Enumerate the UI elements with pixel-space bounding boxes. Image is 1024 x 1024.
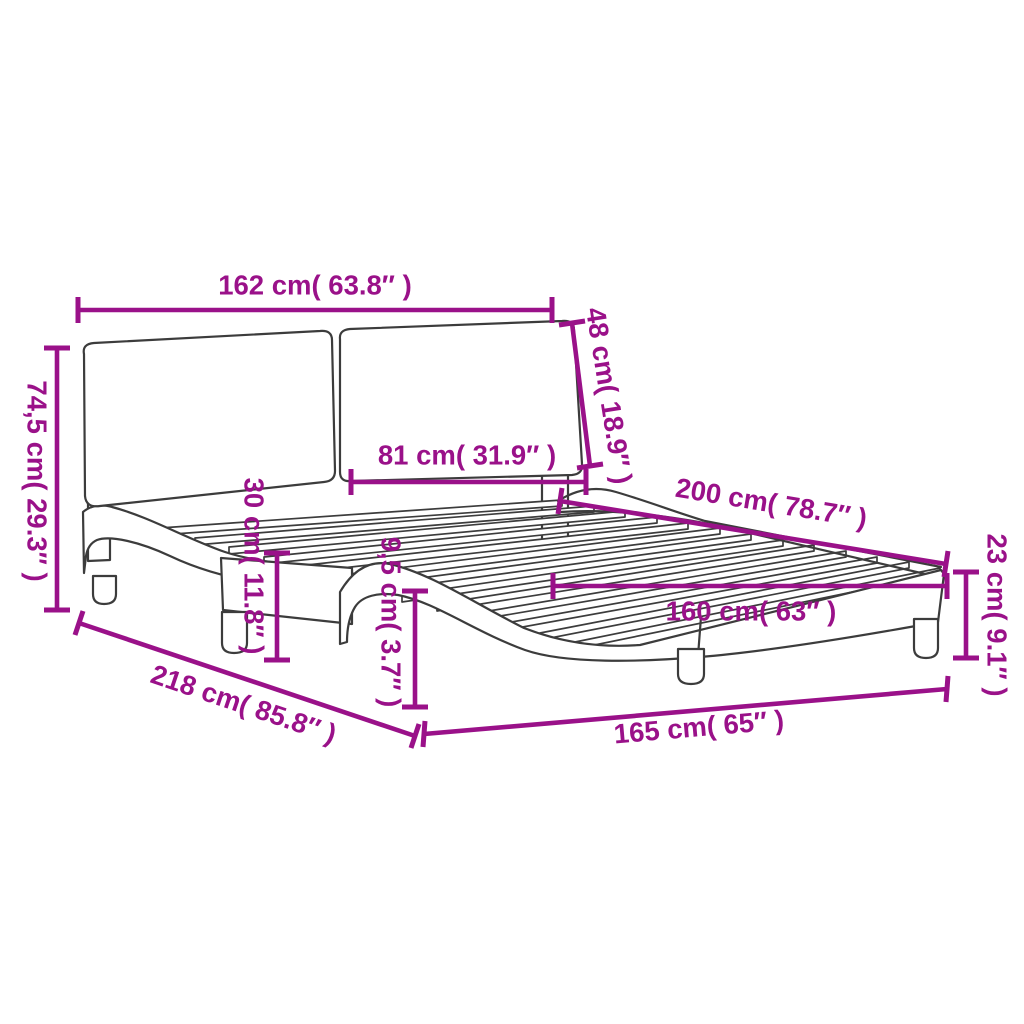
headboard-left-panel-bg: [84, 331, 335, 506]
dim-base-height: 23 cm( 9.1″ ): [953, 534, 1013, 697]
dim-headboard-width: 162 cm( 63.8″ ): [78, 269, 552, 323]
bed-dimension-diagram: 162 cm( 63.8″ ) 48 cm( 18.9″ ) 74,5 cm( …: [0, 0, 1024, 1024]
dim-total-length-label: 218 cm( 85.8″ ): [147, 658, 340, 749]
dim-frame-edge-height: 9,5 cm( 3.7″ ): [376, 537, 428, 708]
right-front-leg: [914, 619, 938, 658]
dim-headboard-total-height: 74,5 cm( 29.3″ ): [22, 348, 70, 610]
dim-side-rail-height-label: 30 cm( 11.8″ ): [239, 478, 270, 655]
dim-slat-base-width-label: 160 cm( 63″ ): [666, 595, 837, 626]
dim-headboard-panel-width-label: 81 cm( 31.9″ ): [378, 439, 556, 470]
dim-total-width-label: 165 cm( 65″ ): [612, 704, 785, 749]
dim-base-height-label: 23 cm( 9.1″ ): [982, 534, 1013, 697]
dim-total-width: 165 cm( 65″ ): [423, 676, 948, 750]
dim-headboard-width-label: 162 cm( 63.8″ ): [218, 269, 412, 300]
left-front-leg: [93, 576, 116, 604]
dim-frame-edge-height-label: 9,5 cm( 3.7″ ): [376, 537, 407, 708]
center-front-leg: [678, 649, 704, 684]
headboard: [84, 321, 582, 506]
dim-headboard-total-height-label: 74,5 cm( 29.3″ ): [22, 380, 53, 581]
